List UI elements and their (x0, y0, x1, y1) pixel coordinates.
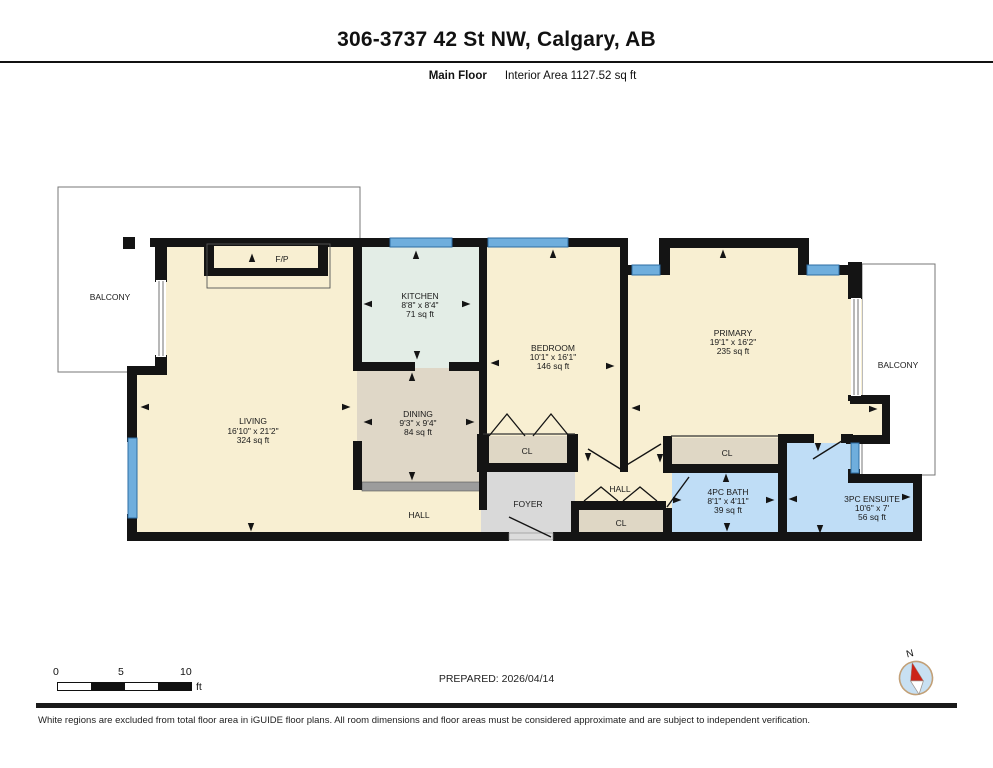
closet-hall-label: CL (616, 518, 627, 528)
prepared-date: PREPARED: 2026/04/14 (0, 673, 993, 685)
kitchen-window (390, 238, 452, 247)
disclaimer-text: White regions are excluded from total fl… (38, 715, 958, 726)
page-title: 306-3737 42 St NW, Calgary, AB (0, 28, 993, 52)
fireplace-label: F/P (275, 254, 289, 264)
kitchen-area: 71 sq ft (406, 309, 435, 319)
closet-primary-label: CL (722, 448, 733, 458)
closet-bedroom-label: CL (522, 446, 533, 456)
bath-area: 39 sq ft (714, 505, 743, 515)
living-name: LIVING (239, 416, 267, 426)
living-window (128, 438, 137, 518)
living-area: 324 sq ft (237, 435, 270, 445)
hall-right-label: HALL (609, 484, 631, 494)
header-divider (0, 61, 993, 63)
floor-name: Main Floor (429, 70, 487, 82)
ensuite-window (851, 443, 859, 473)
hall-main-label: HALL (408, 510, 430, 520)
primary-window-left (632, 265, 660, 275)
bedroom-window (488, 238, 568, 247)
compass: N (890, 642, 942, 702)
primary-area: 235 sq ft (717, 346, 750, 356)
interior-area: Interior Area 1127.52 sq ft (505, 70, 636, 82)
foyer-label: FOYER (513, 499, 542, 509)
dining-area: 84 sq ft (404, 427, 433, 437)
footer-divider (36, 703, 957, 708)
dining-railing (362, 482, 487, 491)
ensuite-area: 56 sq ft (858, 512, 887, 522)
floor-plan-svg: LIVING 16'10" x 21'2" 324 sq ft KITCHEN … (0, 0, 993, 768)
primary-window-right (807, 265, 839, 275)
bedroom-area: 146 sq ft (537, 361, 570, 371)
floor-plan-page: LIVING 16'10" x 21'2" 324 sq ft KITCHEN … (0, 0, 993, 768)
compass-north-label: N (905, 648, 915, 660)
balcony-column (123, 237, 135, 249)
room-label-dining: DINING 9'3" x 9'4" 84 sq ft (399, 409, 436, 437)
balcony-left-label: BALCONY (90, 292, 131, 302)
room-label-kitchen: KITCHEN 8'8" x 8'4" 71 sq ft (401, 291, 438, 319)
floor-subtitle: Main FloorInterior Area 1127.52 sq ft (36, 70, 993, 82)
balcony-right-label: BALCONY (878, 360, 919, 370)
